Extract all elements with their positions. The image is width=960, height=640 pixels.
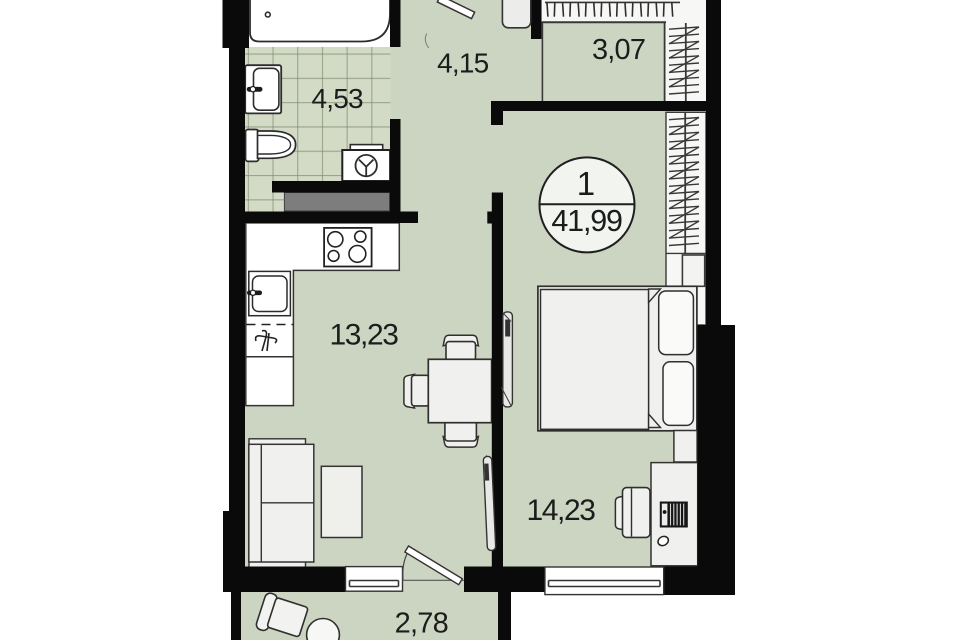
svg-text:2,78: 2,78 [395,608,448,640]
svg-text:14,23: 14,23 [526,494,595,527]
svg-text:41,99: 41,99 [551,204,622,238]
svg-text:1: 1 [577,165,595,202]
svg-text:4,15: 4,15 [437,48,489,79]
svg-text:3,07: 3,07 [592,34,645,66]
svg-text:4,53: 4,53 [311,83,363,114]
svg-text:13,23: 13,23 [329,319,398,352]
